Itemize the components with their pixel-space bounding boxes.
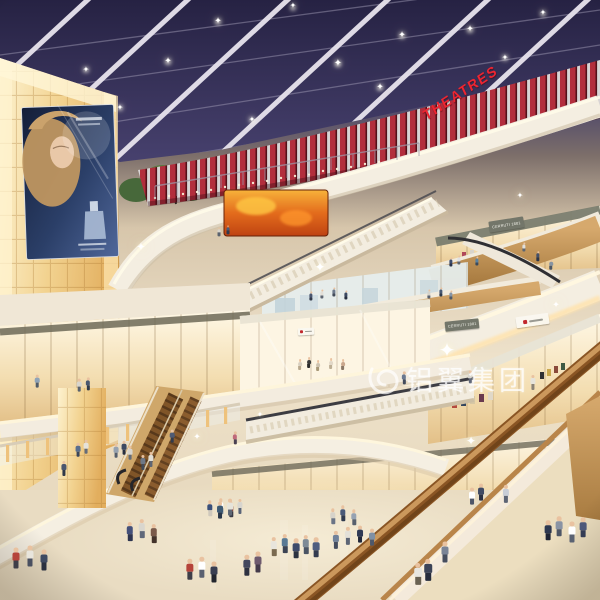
shop-sign-red-logo-small [298,328,314,336]
red-logo-icon [300,330,303,333]
mall-atrium-scene: ✦✦✦✦✦✦✦✦✦✦✦✦✦✦✦✦✦✦✦✦ THEATRES CERRUTI 18… [0,0,600,600]
watermark: 铝翼集团 [366,352,566,404]
mall-render [0,0,600,600]
illegible-text-bar [305,330,312,332]
watermark-text: 铝翼集团 [406,359,530,398]
vignette [0,0,600,600]
shop-sign-text: CERRUTI 1881 [492,220,521,229]
red-logo-icon [522,319,527,324]
swirl-logo-icon [366,359,400,397]
illegible-text-bar [528,318,542,322]
shop-sign-text: CERRUTI 1881 [447,321,476,328]
